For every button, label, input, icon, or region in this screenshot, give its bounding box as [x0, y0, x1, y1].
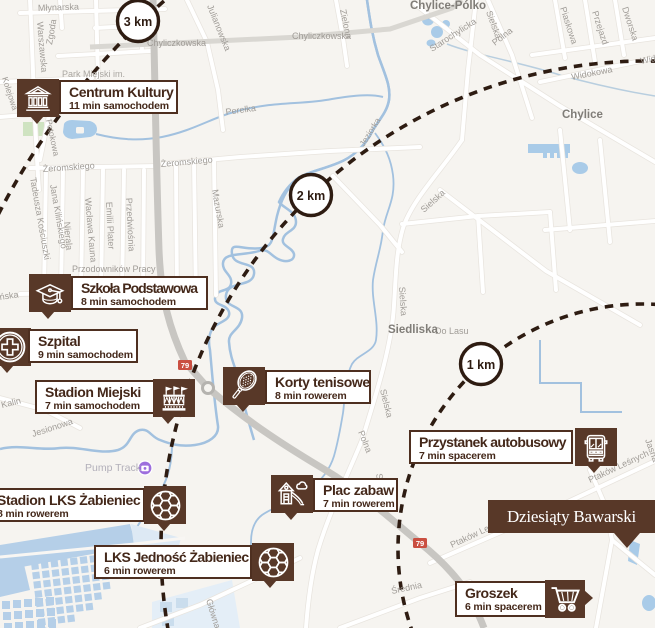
- svg-text:Sielska: Sielska: [397, 286, 409, 316]
- svg-text:Przodowników Pracy: Przodowników Pracy: [72, 264, 156, 274]
- svg-text:1 km: 1 km: [467, 358, 496, 372]
- svg-text:Park Miejski im.: Park Miejski im.: [62, 69, 125, 79]
- svg-text:Do Lasu: Do Lasu: [435, 326, 469, 336]
- svg-text:Siedliska: Siedliska: [388, 324, 438, 336]
- svg-text:Młynarska: Młynarska: [38, 2, 79, 13]
- svg-text:Chyliczkowska: Chyliczkowska: [147, 38, 206, 48]
- svg-text:Chylice-Pólko: Chylice-Pólko: [410, 0, 486, 12]
- svg-text:79: 79: [181, 361, 189, 370]
- svg-text:2 km: 2 km: [297, 189, 326, 203]
- svg-text:3 km: 3 km: [124, 15, 153, 29]
- svg-text:79: 79: [416, 539, 424, 548]
- svg-text:Chyliczkowska: Chyliczkowska: [292, 31, 351, 41]
- svg-text:Chylice: Chylice: [562, 109, 603, 121]
- svg-text:Pump Track: Pump Track: [85, 462, 142, 474]
